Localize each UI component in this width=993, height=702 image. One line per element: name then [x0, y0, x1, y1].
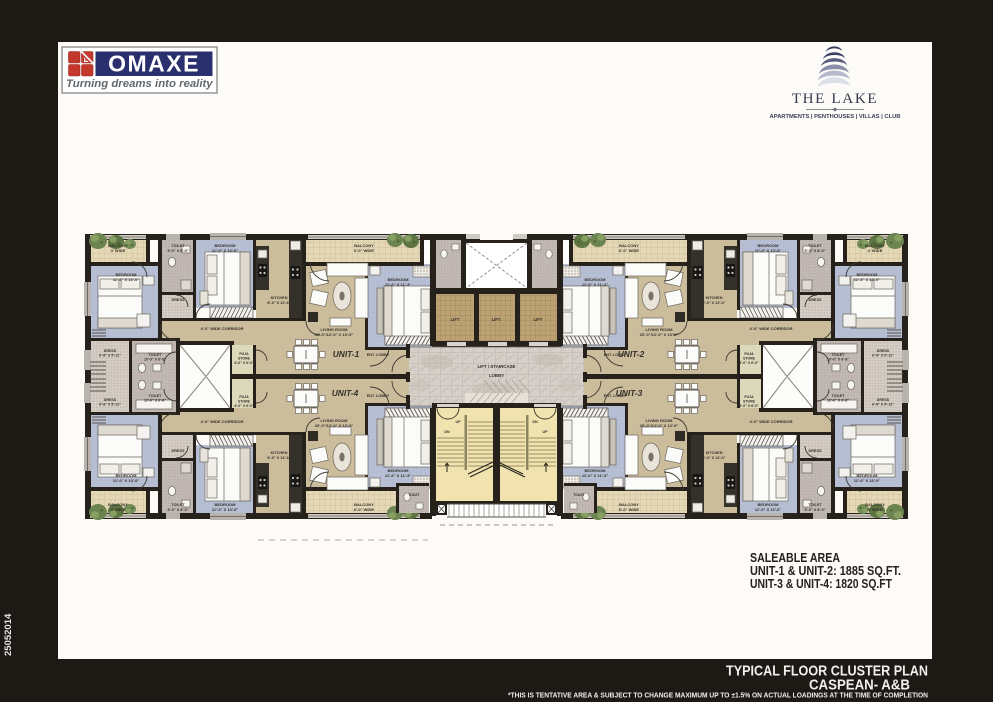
svg-text:6′-8" X 5′-11": 6′-8" X 5′-11" [99, 354, 121, 358]
svg-text:TOILET: TOILET [408, 493, 419, 497]
svg-text:Turning dreams into reality: Turning dreams into reality [66, 78, 213, 90]
svg-text:8′-0" X 12′-6": 8′-0" X 12′-6" [267, 301, 290, 305]
svg-text:KITCHEN: KITCHEN [706, 451, 723, 455]
svg-text:TOILET: TOILET [171, 244, 185, 248]
svg-text:KITCHEN: KITCHEN [271, 296, 288, 300]
svg-text:8′-0" X 12′-6": 8′-0" X 12′-6" [702, 456, 725, 460]
svg-text:11′-0" X 13′-6": 11′-0" X 13′-6" [755, 507, 781, 512]
svg-text:STORE: STORE [743, 357, 756, 361]
svg-text:PUJA: PUJA [239, 395, 249, 399]
svg-text:STORE: STORE [743, 400, 756, 404]
svg-text:5′-0" X 8′-0": 5′-0" X 8′-0" [804, 249, 825, 253]
svg-text:11′-6" X 11′-3": 11′-6" X 11′-3" [582, 473, 608, 478]
svg-text:ENT. LOBBY: ENT. LOBBY [367, 353, 390, 357]
svg-text:TOILET: TOILET [832, 394, 846, 398]
svg-text:11′-6" X 11′-3": 11′-6" X 11′-3" [582, 282, 608, 287]
svg-text:UP: UP [543, 430, 549, 434]
svg-text:UNIT-4: UNIT-4 [332, 388, 359, 398]
svg-text:TOILET: TOILET [171, 503, 185, 507]
svg-text:DN: DN [444, 430, 450, 434]
svg-text:STORE: STORE [238, 400, 251, 404]
svg-text:UNIT-1: UNIT-1 [333, 349, 360, 359]
svg-text:20′-0"/12′-0" X 13′-9": 20′-0"/12′-0" X 13′-9" [640, 332, 679, 337]
svg-text:DRESS: DRESS [104, 398, 117, 402]
svg-text:4′-0" X 6′-0": 4′-0" X 6′-0" [739, 361, 759, 365]
svg-text:DRESS: DRESS [171, 449, 185, 453]
svg-text:5′-0" X 8′-0": 5′-0" X 8′-0" [167, 508, 188, 512]
svg-text:UNIT-3: UNIT-3 [616, 388, 643, 398]
svg-text:APARTMENTS | PENTHOUSES | VILL: APARTMENTS | PENTHOUSES | VILLAS | CLUB [769, 114, 900, 120]
svg-text:LIFT: LIFT [451, 317, 460, 322]
svg-text:*THIS IS TENTATIVE AREA & SUBJ: *THIS IS TENTATIVE AREA & SUBJECT TO CHA… [508, 691, 928, 700]
svg-text:UNIT-2: UNIT-2 [618, 349, 645, 359]
svg-text:10′-0" X 6′-8": 10′-0" X 6′-8" [827, 399, 849, 403]
svg-text:LIFT: LIFT [534, 317, 543, 322]
svg-text:LIFT / STAIRCASE: LIFT / STAIRCASE [478, 364, 516, 369]
svg-text:4′-0" WIDE CORRIDOR: 4′-0" WIDE CORRIDOR [200, 419, 243, 424]
svg-text:11′-0" X 13′-6": 11′-0" X 13′-6" [212, 248, 238, 253]
svg-text:11′-6" X 13′-0": 11′-6" X 13′-0" [854, 478, 880, 483]
svg-text:DRESS: DRESS [877, 349, 890, 353]
svg-text:TOILET: TOILET [149, 394, 163, 398]
svg-text:OMAXE: OMAXE [108, 51, 200, 77]
svg-text:PUJA: PUJA [239, 352, 249, 356]
svg-text:6′-8" X 5′-11": 6′-8" X 5′-11" [872, 403, 894, 407]
svg-text:10′-0" X 6′-8": 10′-0" X 6′-8" [827, 358, 849, 362]
svg-text:4′-0" X 6′-0": 4′-0" X 6′-0" [234, 361, 254, 365]
svg-text:LOBBY: LOBBY [489, 373, 504, 378]
svg-text:5′-0" X 8′-0": 5′-0" X 8′-0" [167, 249, 188, 253]
svg-text:6′-0" WIDE: 6′-0" WIDE [619, 248, 640, 253]
svg-text:TOILET: TOILET [832, 353, 846, 357]
svg-text:TOILET: TOILET [149, 353, 163, 357]
svg-text:4' WIDE: 4' WIDE [111, 507, 126, 512]
svg-text:4′-0" WIDE CORRIDOR: 4′-0" WIDE CORRIDOR [749, 419, 792, 424]
svg-text:6′-8" X 5′-11": 6′-8" X 5′-11" [99, 403, 121, 407]
svg-text:8′-0" X 12′-6": 8′-0" X 12′-6" [267, 456, 290, 460]
svg-text:DRESS: DRESS [808, 298, 822, 302]
svg-text:LIFT: LIFT [492, 317, 501, 322]
svg-text:5′-0" X 8′-0": 5′-0" X 8′-0" [804, 508, 825, 512]
svg-text:11′-6" X 11′-3": 11′-6" X 11′-3" [385, 473, 411, 478]
svg-text:ENT. LOBBY: ENT. LOBBY [367, 394, 390, 398]
svg-text:6′-0" WIDE: 6′-0" WIDE [354, 248, 375, 253]
svg-text:TOILET: TOILET [808, 503, 822, 507]
svg-text:DN: DN [532, 420, 538, 424]
svg-text:10′-0" X 6′-8": 10′-0" X 6′-8" [144, 399, 166, 403]
svg-text:TOILET: TOILET [808, 244, 822, 248]
svg-text:4' WIDE: 4' WIDE [868, 507, 883, 512]
svg-text:4' WIDE: 4' WIDE [868, 248, 883, 253]
svg-text:PUJA: PUJA [744, 352, 754, 356]
svg-text:DRESS: DRESS [171, 298, 185, 302]
svg-text:25052014: 25052014 [3, 613, 14, 656]
svg-text:DRESS: DRESS [877, 398, 890, 402]
svg-text:4′-0" WIDE CORRIDOR: 4′-0" WIDE CORRIDOR [200, 326, 243, 331]
svg-text:KITCHEN: KITCHEN [271, 451, 288, 455]
svg-text:11′-0" X 13′-6": 11′-0" X 13′-6" [755, 248, 781, 253]
svg-text:8′-0" X 12′-6": 8′-0" X 12′-6" [702, 301, 725, 305]
svg-text:UP: UP [456, 420, 462, 424]
svg-text:THE LAKE: THE LAKE [792, 90, 879, 107]
svg-text:PUJA: PUJA [744, 395, 754, 399]
svg-text:6′-0" WIDE: 6′-0" WIDE [354, 507, 375, 512]
svg-text:DRESS: DRESS [104, 349, 117, 353]
svg-text:11′-6" X 13′-0": 11′-6" X 13′-0" [854, 277, 880, 282]
svg-text:UNIT-3 & UNIT-4: 1820 SQ.FT: UNIT-3 & UNIT-4: 1820 SQ.FT [750, 576, 892, 591]
svg-text:4' WIDE: 4' WIDE [111, 248, 126, 253]
svg-text:4′-0" X 6′-0": 4′-0" X 6′-0" [739, 404, 759, 408]
svg-text:TOILET: TOILET [573, 493, 584, 497]
svg-text:STORE: STORE [238, 357, 251, 361]
svg-text:4′-0" X 6′-0": 4′-0" X 6′-0" [234, 404, 254, 408]
svg-text:20′-0"/12′-0" X 13′-9": 20′-0"/12′-0" X 13′-9" [315, 332, 354, 337]
svg-text:11′-0" X 13′-6": 11′-0" X 13′-6" [212, 507, 238, 512]
svg-text:6′-0" WIDE: 6′-0" WIDE [619, 507, 640, 512]
svg-text:20′-0"/12′-0" X 13′-9": 20′-0"/12′-0" X 13′-9" [640, 423, 679, 428]
svg-text:4′-0" WIDE CORRIDOR: 4′-0" WIDE CORRIDOR [749, 326, 792, 331]
svg-text:KITCHEN: KITCHEN [706, 296, 723, 300]
svg-text:11′-6" X 13′-0": 11′-6" X 13′-0" [113, 277, 139, 282]
svg-text:DRESS: DRESS [808, 449, 822, 453]
svg-text:10′-0" X 6′-8": 10′-0" X 6′-8" [144, 358, 166, 362]
svg-text:6′-8" X 5′-11": 6′-8" X 5′-11" [872, 354, 894, 358]
svg-text:11′-6" X 13′-0": 11′-6" X 13′-0" [113, 478, 139, 483]
svg-text:11′-6" X 11′-3": 11′-6" X 11′-3" [385, 282, 411, 287]
svg-text:20′-0"/12′-0" X 13′-9": 20′-0"/12′-0" X 13′-9" [315, 423, 354, 428]
